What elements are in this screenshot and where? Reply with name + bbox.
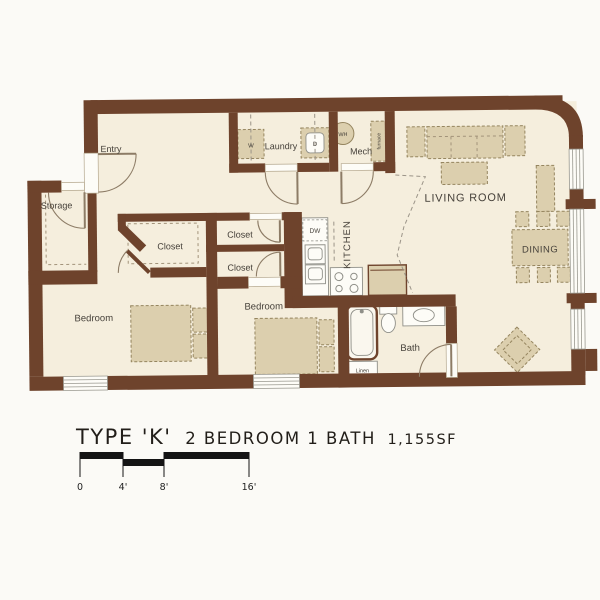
window-right-lower (571, 309, 585, 349)
scale-tick-16: 16' (242, 482, 257, 493)
room-label-bath: Bath (400, 343, 420, 354)
dining-chair (557, 211, 570, 226)
room-label-storage: Storage (41, 200, 73, 210)
room-label-bedroom2: Bedroom (244, 301, 283, 312)
pillow (319, 320, 334, 345)
pillow (319, 347, 334, 372)
room-label-closet-bottom: Closet (227, 262, 253, 272)
end-table-right (505, 126, 525, 156)
room-label-entry: Entry (100, 144, 122, 154)
washer-label: W (248, 143, 254, 149)
toilet-bowl (381, 314, 395, 333)
furnace-label: furnace (376, 133, 382, 150)
bed-bedroom1 (131, 305, 192, 362)
sink-basin (308, 248, 322, 260)
window-dining (570, 209, 585, 293)
stove (330, 267, 362, 295)
room-label-linen: Linen (356, 368, 370, 374)
window-bedroom2 (253, 374, 299, 388)
room-label-dining: DINING (522, 244, 558, 255)
floorplan-svg: Entry Storage Laundry Mech LIVING ROOM D… (0, 0, 600, 600)
dryer-label: D (313, 142, 318, 148)
window-bedroom1 (63, 376, 107, 390)
coffee-table (441, 162, 487, 184)
room-label-laundry: Laundry (265, 141, 298, 151)
sink-basin (308, 268, 322, 280)
dining-chair (516, 212, 529, 227)
dishwasher-label: DW (309, 228, 321, 235)
scale-tick-8: 8' (160, 482, 169, 493)
dining-chair (537, 267, 550, 282)
dining-chair (537, 211, 550, 226)
pillow (193, 334, 208, 358)
room-label-kitchen: KITCHEN (342, 220, 354, 269)
dining-chair (516, 268, 529, 283)
room-label-walkin-closet: Closet (157, 241, 183, 251)
scale-tick-0: 0 (77, 482, 83, 493)
mech-door-sill (341, 163, 373, 170)
floorplan-page: Entry Storage Laundry Mech LIVING ROOM D… (0, 0, 600, 600)
water-heater-label: WH (338, 132, 347, 138)
closet-bottom-door-sill (248, 277, 280, 286)
laundry-door-sill (265, 164, 297, 171)
vanity-sink (413, 309, 434, 322)
sofa (427, 126, 503, 159)
dining-chair (557, 267, 570, 282)
window-living-room (569, 149, 583, 189)
bed-bedroom2 (255, 318, 318, 375)
plan-title-specs: 2 BEDROOM 1 BATH (185, 429, 376, 448)
end-table-left (407, 127, 425, 157)
room-label-mech: Mech (350, 146, 372, 156)
room-label-closet-top: Closet (227, 229, 253, 239)
room-label-living-room: LIVING ROOM (424, 192, 506, 205)
plan-title-area: 1,155SF (387, 432, 457, 448)
storage-door-sill (61, 182, 84, 190)
entry-door-sill (84, 153, 98, 193)
armchair (536, 165, 554, 211)
plan-title: TYPE 'K' 2 BEDROOM 1 BATH 1,155SF (75, 425, 457, 449)
plan-title-type: TYPE 'K' (75, 425, 172, 449)
scale-bar: 0 4' 8' 16' (77, 452, 256, 493)
pillow (193, 308, 208, 332)
room-label-bedroom1: Bedroom (74, 313, 113, 324)
floor-plan: Entry Storage Laundry Mech LIVING ROOM D… (27, 95, 598, 391)
scale-tick-4: 4' (119, 482, 128, 493)
closet-top-door-sill (250, 213, 282, 219)
